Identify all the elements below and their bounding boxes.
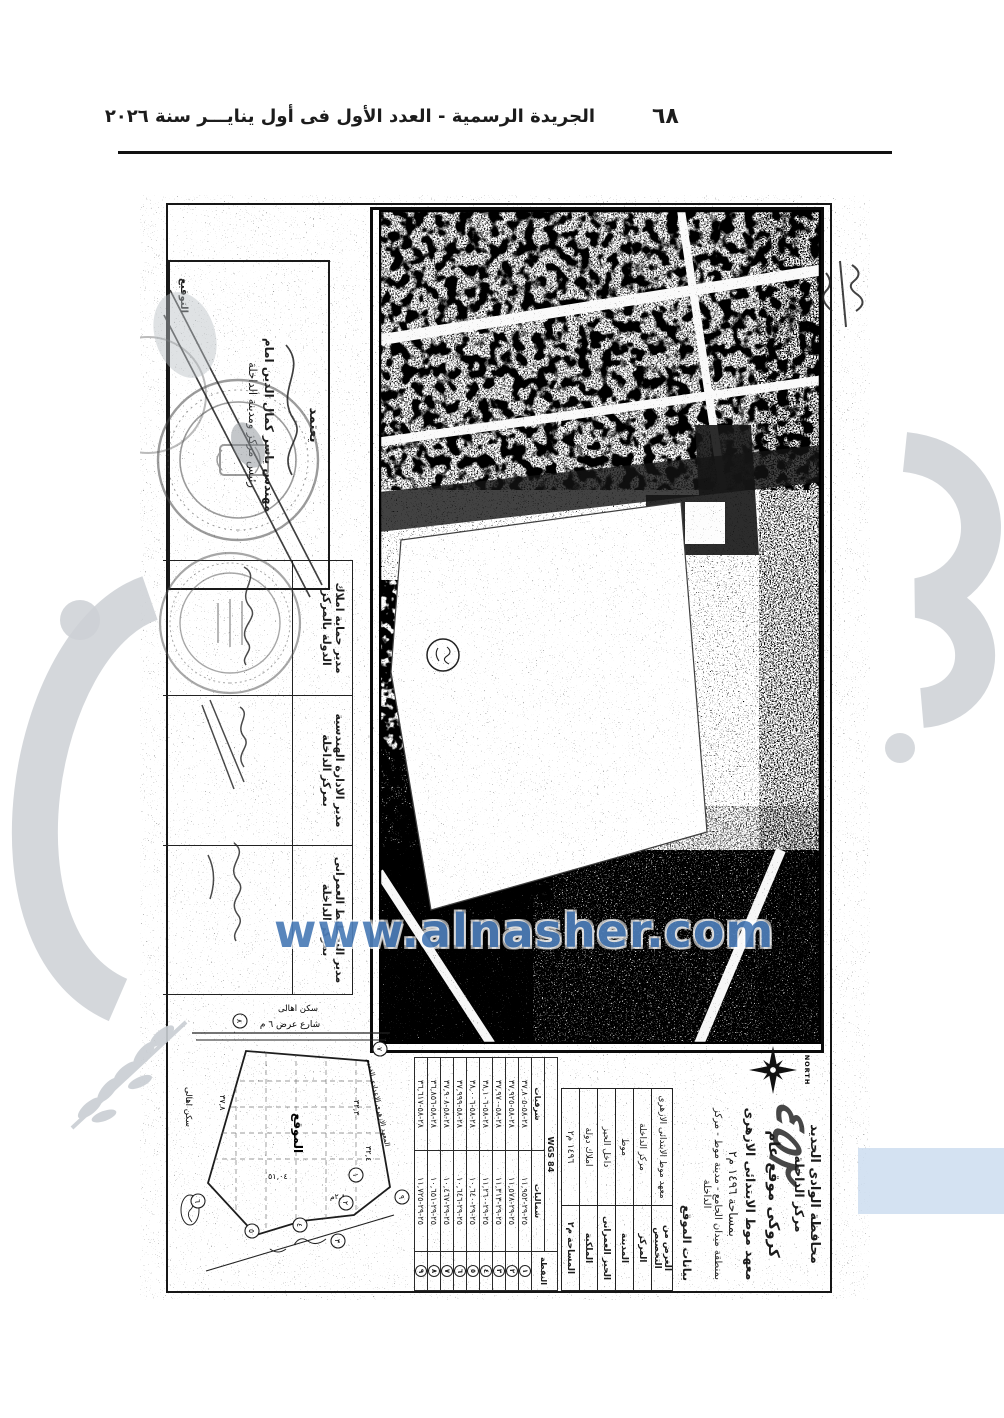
gazette-header-title: الجريدة الرسمية - العدد الأول فى أول ينا… bbox=[255, 106, 595, 127]
svg-text:٤: ٤ bbox=[295, 1223, 304, 1227]
east-value: ٢٨-٥٨-٣٨,١٠٦ bbox=[480, 1058, 493, 1151]
table-row: الحيز العمرانى داخل الحيز bbox=[598, 1089, 616, 1291]
site-data-caption: بيانات الموقع bbox=[680, 1195, 694, 1291]
north-value: ٢٥-٢٩-١١,٢٦٠ bbox=[480, 1151, 493, 1252]
signature-strip: يعتمد مهندس ياسر كمال الدين امام رئيس مر… bbox=[163, 230, 353, 995]
svg-text:٣: ٣ bbox=[333, 1239, 342, 1243]
table-row: ٣ ٢٥-٢٩-١١,٣١٣ ٢٨-٥٨-٣٧,٩٧٠ bbox=[493, 1058, 506, 1291]
institute-label: المعهد الازهرى الاعدادى القديم bbox=[365, 1058, 391, 1147]
svg-text:٦: ٦ bbox=[193, 1199, 202, 1203]
street-label: شارع عرض ٦ م bbox=[260, 1020, 320, 1030]
north-value: ٢٥-٢٩-١١,٣١٣ bbox=[493, 1151, 506, 1252]
header-rule bbox=[118, 151, 892, 154]
gazette-page: الجريدة الرسمية - العدد الأول فى أول ينا… bbox=[0, 0, 1004, 1418]
watermark-letter-shape bbox=[35, 598, 150, 1000]
website-watermark: www.alnasher.com bbox=[274, 904, 718, 958]
info-label: الملكية bbox=[580, 1206, 598, 1291]
table-row: الملكية املاك دولة bbox=[580, 1089, 598, 1291]
dim-label: ٣٧,٨ bbox=[218, 1095, 227, 1111]
info-label: المساحة م٢ bbox=[562, 1206, 580, 1291]
info-value: موط bbox=[616, 1089, 634, 1206]
table-row: ٨ ٢٥-٢٩-١٠,٦٥١ ٢٨-٥٨-٣٦,٨٥٦ bbox=[428, 1058, 441, 1291]
east-value: ٢٨-٥٨-٣٧,٨٠٥ bbox=[519, 1058, 532, 1151]
point-column-header: النقطة bbox=[532, 1252, 558, 1291]
approval-title: يعتمد bbox=[306, 262, 322, 588]
info-value: املاك دولة bbox=[580, 1089, 598, 1206]
datum-header: WGS 84 bbox=[545, 1058, 558, 1252]
sketch-heading: كروكى موقع عام bbox=[765, 1095, 783, 1293]
approval-box: يعتمد مهندس ياسر كمال الدين امام رئيس مر… bbox=[168, 260, 330, 590]
table-row: النقطة WGS 84 bbox=[545, 1058, 558, 1291]
table-row: الغرض من التخصيص معهد موط الابتدائى الاز… bbox=[652, 1089, 673, 1291]
svg-text:٧: ٧ bbox=[375, 1047, 384, 1051]
table-row: ١ ٢٥-٢٩-١١,٩٥٢ ٢٨-٥٨-٣٧,٨٠٥ bbox=[519, 1058, 532, 1291]
north-value: ٢٥-٢٩-١٠,٦٥١ bbox=[428, 1151, 441, 1252]
approver-name: مهندس ياسر كمال الدين امام bbox=[262, 262, 276, 588]
east-value: ٢٨-٥٨-٣٦,٨٥٦ bbox=[428, 1058, 441, 1151]
info-value: مركز الداخلة bbox=[634, 1089, 652, 1206]
svg-text:٨: ٨ bbox=[235, 1019, 244, 1023]
eastings-header: شرقيات bbox=[532, 1058, 545, 1151]
site-marker-icon bbox=[427, 639, 459, 671]
markaz-name: مركز الداخلة bbox=[792, 1095, 807, 1293]
governorate-name: محافظة الوادى الجديد bbox=[807, 1095, 822, 1293]
svg-text:١: ١ bbox=[351, 1173, 360, 1177]
page-number: ٦٨ bbox=[652, 104, 679, 129]
north-value: ٢٥-٢٩-١١,٥٧٨ bbox=[506, 1151, 519, 1252]
info-value: ١٤٩٦ م٢ bbox=[562, 1089, 580, 1206]
table-row: ٧ ٢٥-٢٩-١٠,٤٦٧ ٢٨-٥٨-٣٧,٩٠٨ bbox=[441, 1058, 454, 1291]
info-value: معهد موط الابتدائى الازهرى bbox=[652, 1089, 673, 1206]
location-line: بمنطقة ميدان الجامع - مدينة موط - مركز ا… bbox=[701, 1095, 723, 1293]
scanned-document: محافظة الوادى الجديد مركز الداخلة كروكى … bbox=[140, 195, 870, 1300]
compass-rose-icon: NORTH bbox=[742, 1043, 814, 1097]
site-sketch: شارع عرض ٦ م سكن اهالى الموقع المعهد الا… bbox=[166, 1003, 418, 1293]
table-row: ٥ ٢٥-٢٩-١٠,٦٤٠ ٢٨-٥٨-٣٨,٠٠٦ bbox=[467, 1058, 480, 1291]
coordinates-table: النقطة WGS 84 شماليات شرقيات ١ ٢٥-٢٩-١١,… bbox=[414, 1057, 558, 1291]
table-row: المساحة م٢ ١٤٩٦ م٢ bbox=[562, 1089, 580, 1291]
svg-text:٢: ٢ bbox=[341, 1201, 350, 1205]
north-value: ٢٥-٢٩-١١,٩٥٢ bbox=[519, 1151, 532, 1252]
info-label: المدينة bbox=[616, 1206, 634, 1291]
east-value: ٢٨-٥٨-٣٧,٩٧٠ bbox=[493, 1058, 506, 1151]
table-row: المركز مركز الداخلة bbox=[634, 1089, 652, 1291]
east-value: ٢٨-٥٨-٣٧,٩٠٨ bbox=[441, 1058, 454, 1151]
info-value: داخل الحيز bbox=[598, 1089, 616, 1206]
north-value: ٢٥-٢٩-١٠,٦٤٦ bbox=[454, 1151, 467, 1252]
dim-label: ٣٢,٣ bbox=[352, 1100, 361, 1116]
northings-header: شماليات bbox=[532, 1151, 545, 1252]
watermark-block bbox=[858, 1148, 1004, 1214]
info-label: الغرض من التخصيص bbox=[652, 1206, 673, 1291]
officer-column: مدير الادارة الهندسية بمركز الداخلة bbox=[163, 695, 353, 845]
neighbor-label-bottom: سكن اهالى bbox=[183, 1087, 193, 1127]
neighbor-label-top: سكن اهالى bbox=[278, 1004, 318, 1014]
institute-name: معهد موط الابتدائى الازهرى bbox=[743, 1095, 758, 1293]
area-line: بمساحة ١٤٩٦ م٢ bbox=[726, 1095, 740, 1293]
svg-text:NORTH: NORTH bbox=[803, 1055, 811, 1086]
table-row: المدينة موط bbox=[616, 1089, 634, 1291]
east-value: ٢٨-٥٨-٣٧,٩٩٩ bbox=[454, 1058, 467, 1151]
north-value: ٢٥-٢٩-١٠,٦٤٠ bbox=[467, 1151, 480, 1252]
site-data-table: الغرض من التخصيص معهد موط الابتدائى الاز… bbox=[561, 1088, 673, 1291]
site-label: الموقع bbox=[290, 1113, 305, 1153]
table-row: ٤ ٢٥-٢٩-١١,٢٦٠ ٢٨-٥٨-٣٨,١٠٦ bbox=[480, 1058, 493, 1291]
dim-label: ٣٢,٤ bbox=[364, 1146, 373, 1161]
dim-label: ٥١,٠٤ bbox=[268, 1172, 288, 1181]
north-value: ٢٥-٢٩-١٠,٤٦٧ bbox=[441, 1151, 454, 1252]
officer-title: مدير الادارة الهندسية بمركز الداخلة bbox=[292, 696, 352, 845]
table-row: ٢ ٢٥-٢٩-١١,٥٧٨ ٢٨-٥٨-٣٧,٩٢٥ bbox=[506, 1058, 519, 1291]
title-block: محافظة الوادى الجديد مركز الداخلة كروكى … bbox=[701, 1095, 822, 1293]
info-label: الحيز العمرانى bbox=[598, 1206, 616, 1291]
east-value: ٢٨-٥٨-٣٧,٩٢٥ bbox=[506, 1058, 519, 1151]
info-label: المركز bbox=[634, 1206, 652, 1291]
table-row: ٦ ٢٥-٢٩-١٠,٦٤٦ ٢٨-٥٨-٣٧,٩٩٩ bbox=[454, 1058, 467, 1291]
signature-label: التوقيع bbox=[178, 278, 189, 313]
watermark-dot bbox=[60, 600, 100, 640]
approver-role: رئيس مركز ومدينة الداخلة bbox=[246, 262, 260, 588]
svg-text:٥: ٥ bbox=[247, 1229, 256, 1233]
east-value: ٢٨-٥٨-٣٨,٠٠٦ bbox=[467, 1058, 480, 1151]
svg-text:٩: ٩ bbox=[397, 1195, 406, 1199]
approval-area: يعتمد مهندس ياسر كمال الدين امام رئيس مر… bbox=[163, 230, 353, 560]
